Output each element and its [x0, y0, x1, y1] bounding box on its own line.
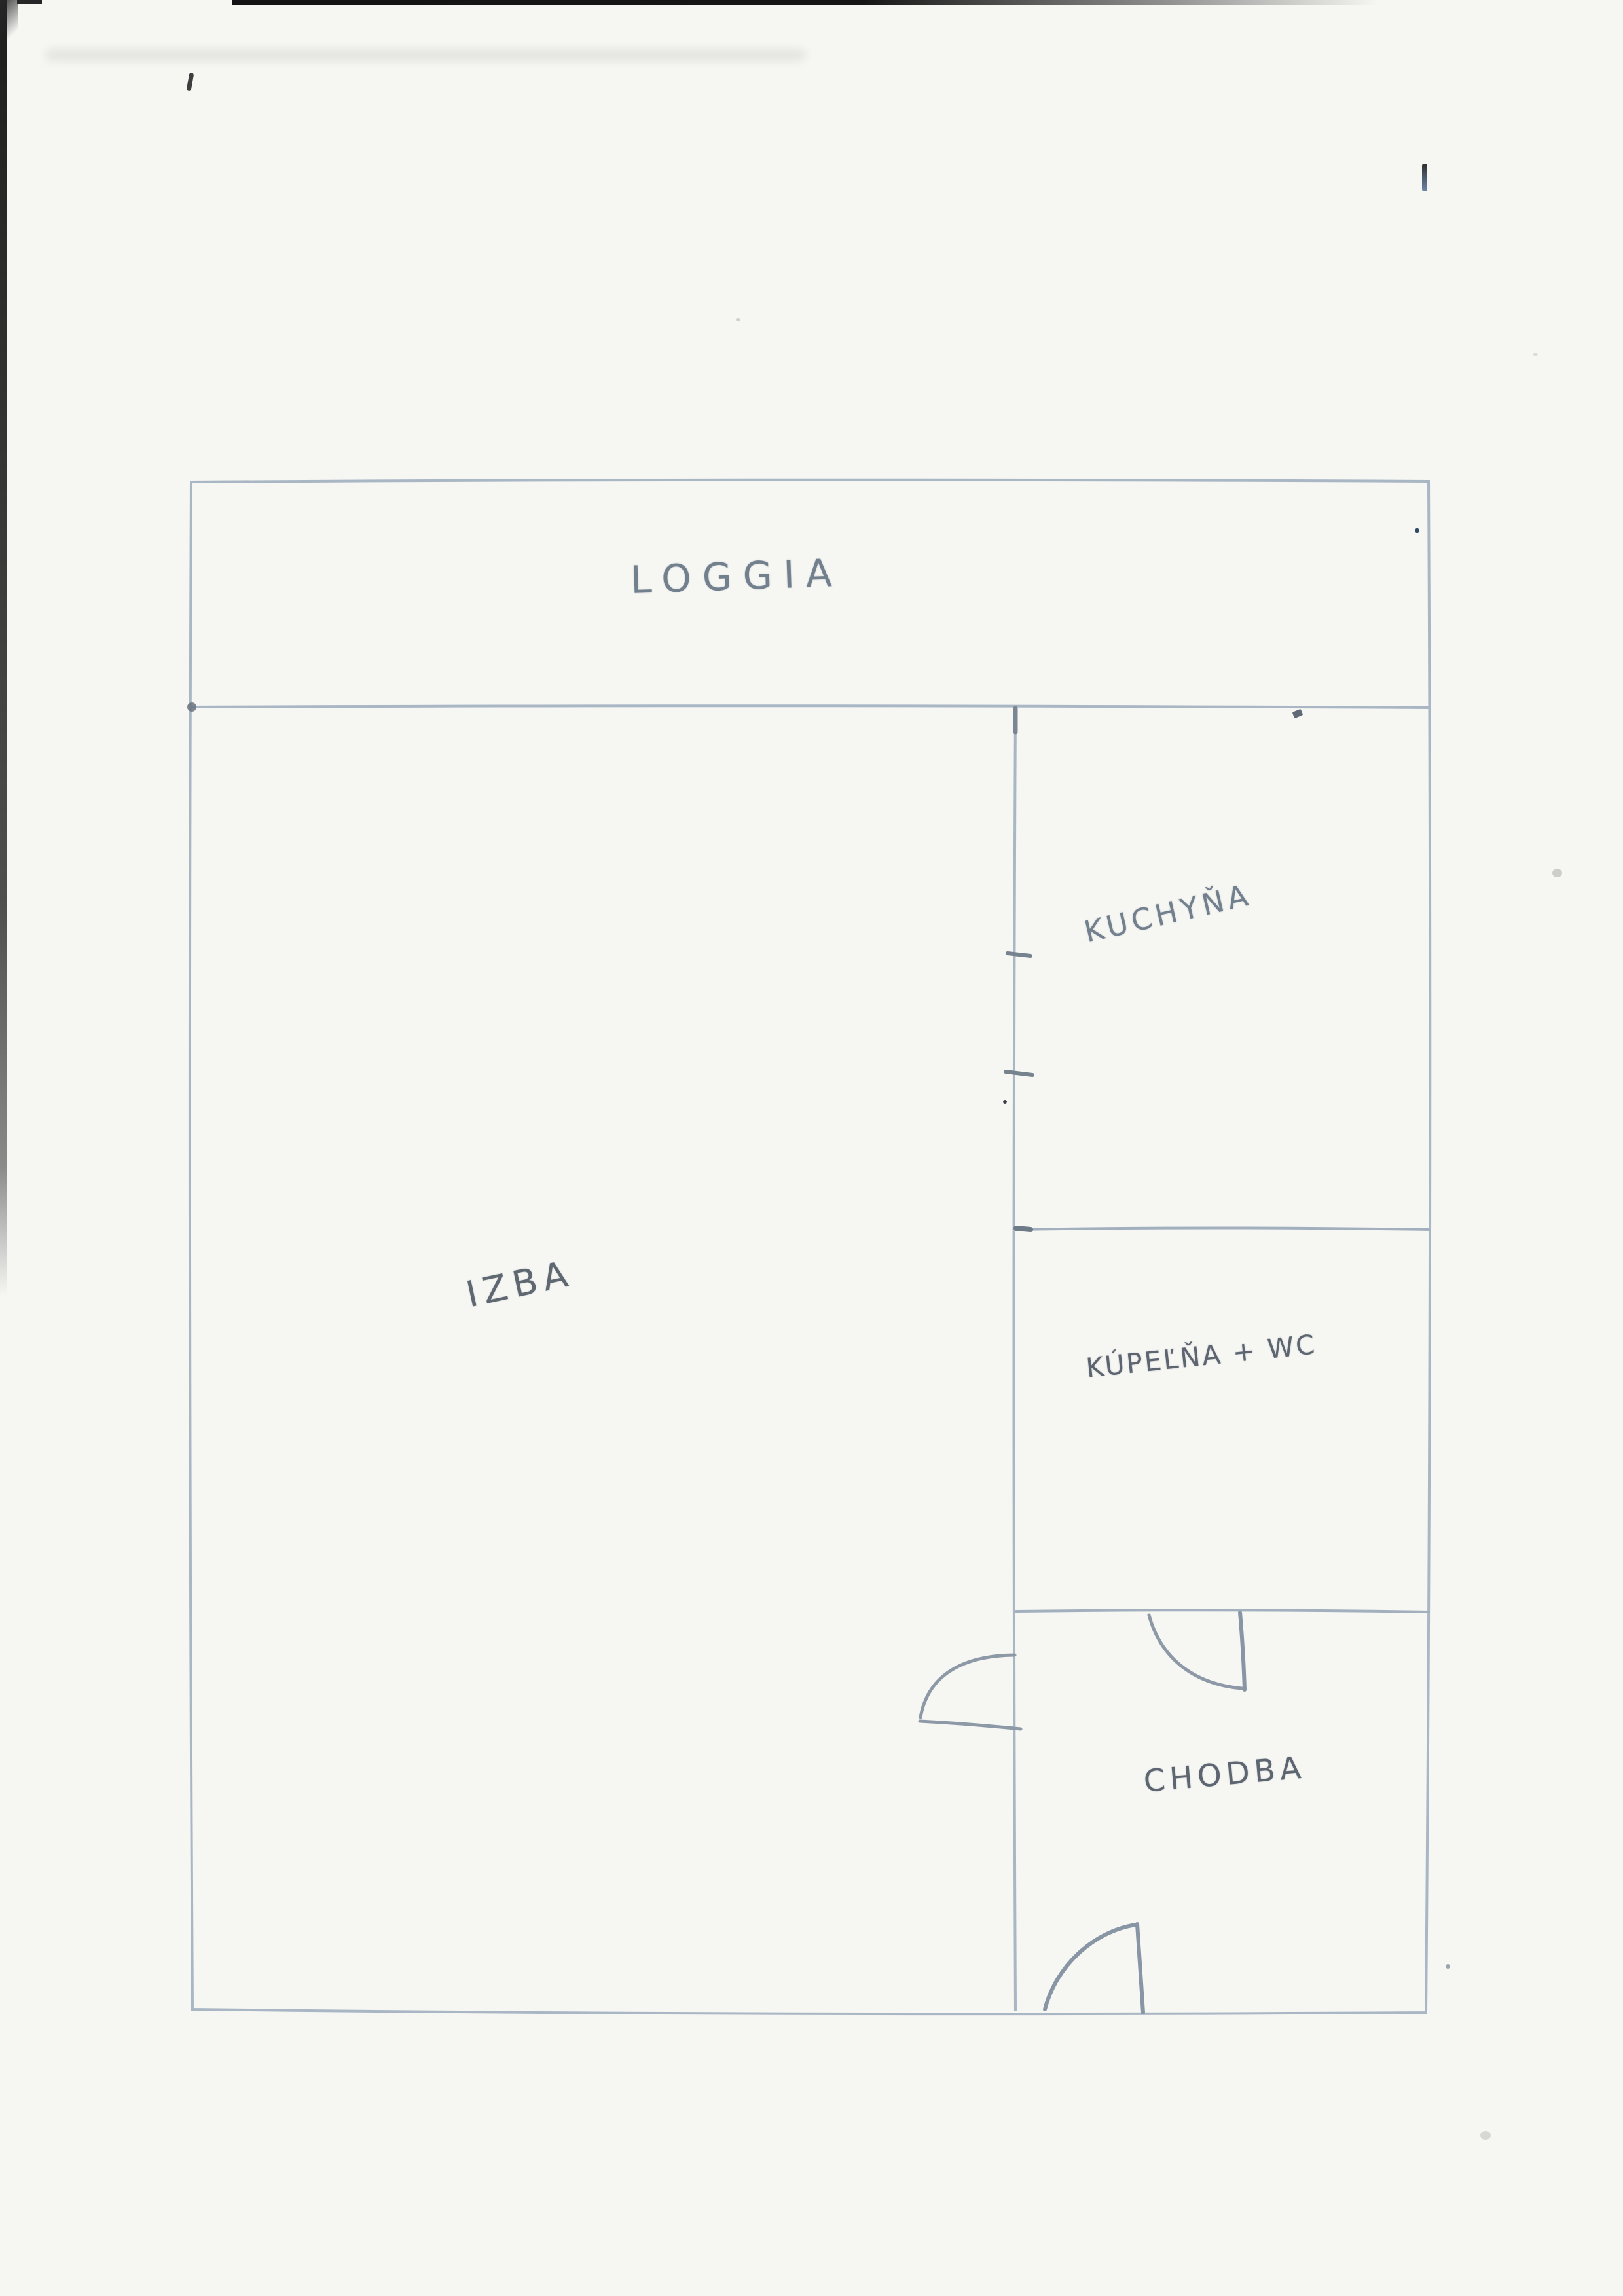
pencil-junction-emphasis — [1016, 1228, 1030, 1230]
door-arc-chodba-top — [1149, 1615, 1242, 1688]
door-arc-izba — [921, 1655, 1015, 1717]
door-arc-entrance — [1045, 1925, 1136, 2009]
door-leaf-chodba-top — [1240, 1613, 1245, 1690]
room-label-loggia: LOGGIA — [630, 551, 844, 602]
door-leaf-entrance — [1137, 1924, 1143, 2013]
wall-opening-tick — [1006, 1072, 1032, 1075]
door-leaf-izba — [920, 1721, 1021, 1729]
wall-kuchyna-bottom — [1016, 1228, 1429, 1230]
scanned-floor-plan-page: LOGGIA KUCHYŇA IZBA KÚPEĽŇA + WC CHODBA — [0, 0, 1623, 2296]
wall-vertical-divider — [1014, 707, 1016, 2010]
pencil-junction-blob — [187, 702, 196, 712]
wall-kupelna-bottom — [1016, 1610, 1429, 1612]
floor-plan-drawing — [0, 0, 1623, 2296]
wall-opening-tick — [1008, 953, 1030, 956]
wall-loggia-separator — [192, 706, 1429, 708]
